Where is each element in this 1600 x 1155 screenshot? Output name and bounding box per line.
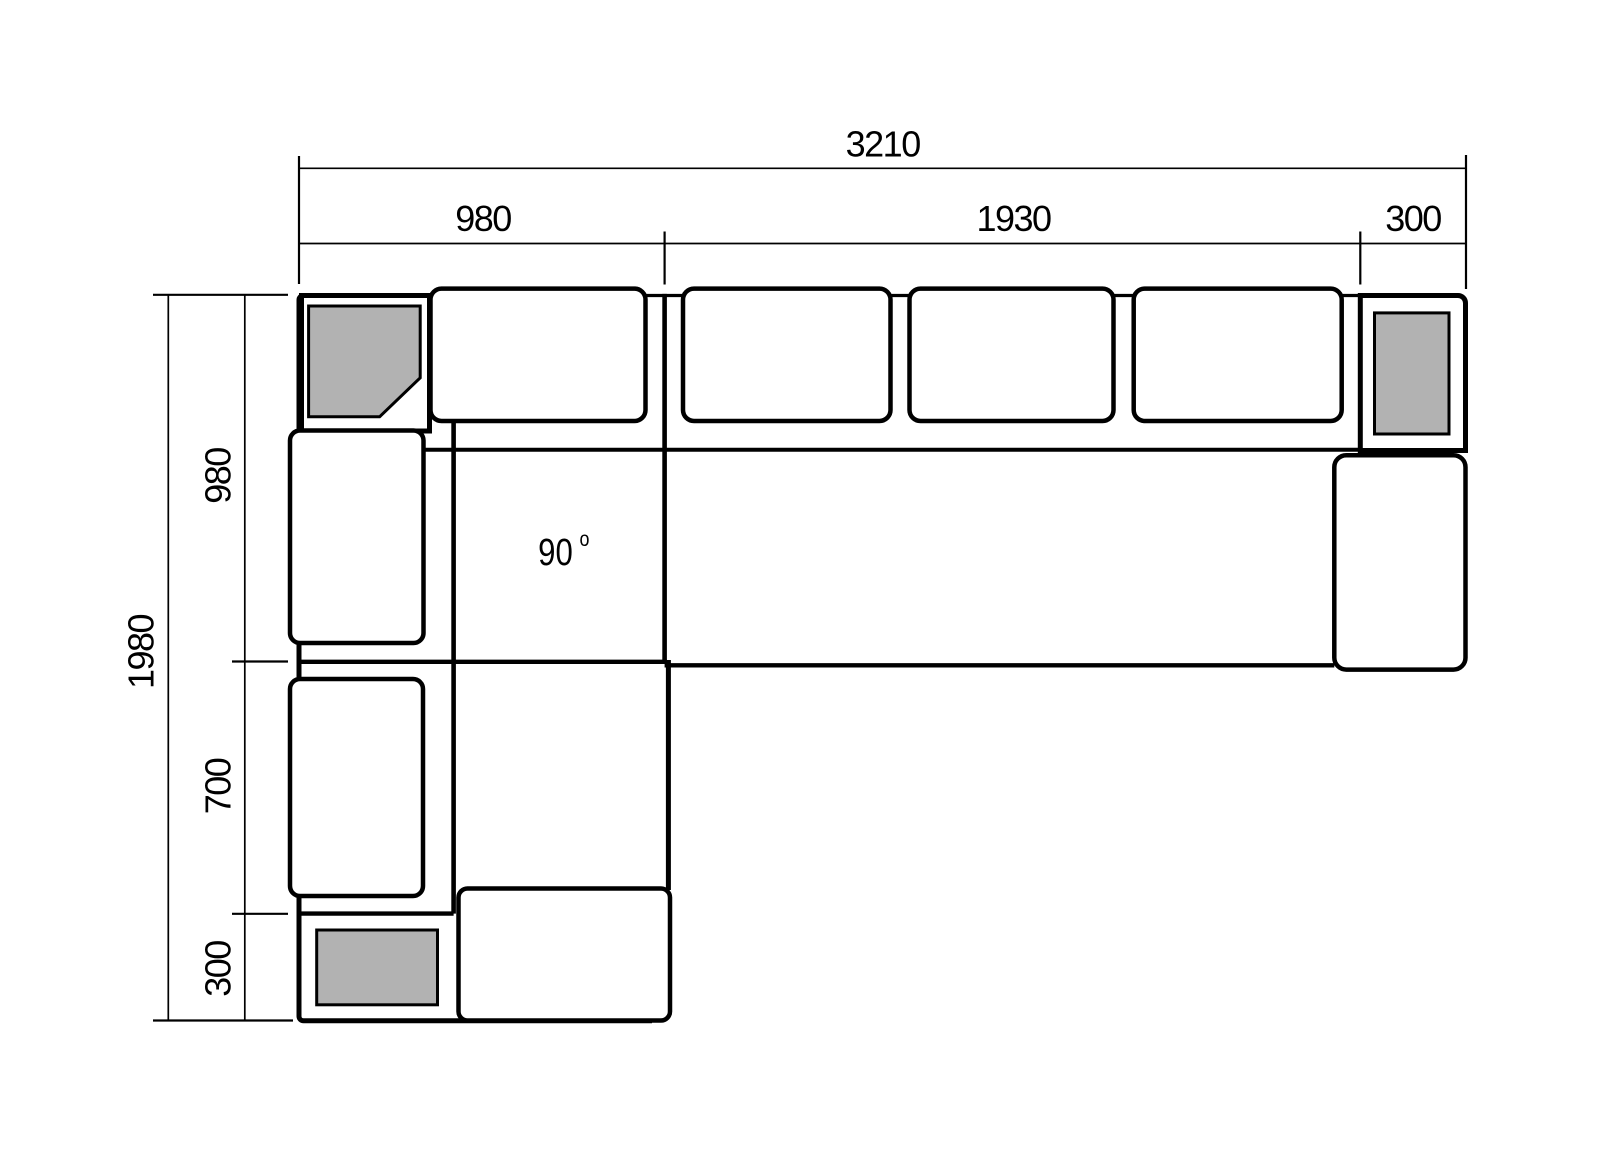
svg-text:980: 980: [198, 448, 239, 504]
svg-text:1980: 1980: [121, 614, 162, 689]
svg-text:o: o: [580, 528, 590, 552]
svg-text:3210: 3210: [846, 124, 921, 165]
svg-text:700: 700: [198, 758, 239, 814]
svg-text:300: 300: [198, 941, 239, 997]
svg-text:300: 300: [1385, 198, 1441, 239]
svg-text:90: 90: [538, 532, 573, 574]
svg-text:1930: 1930: [976, 198, 1051, 239]
svg-text:980: 980: [455, 198, 511, 239]
